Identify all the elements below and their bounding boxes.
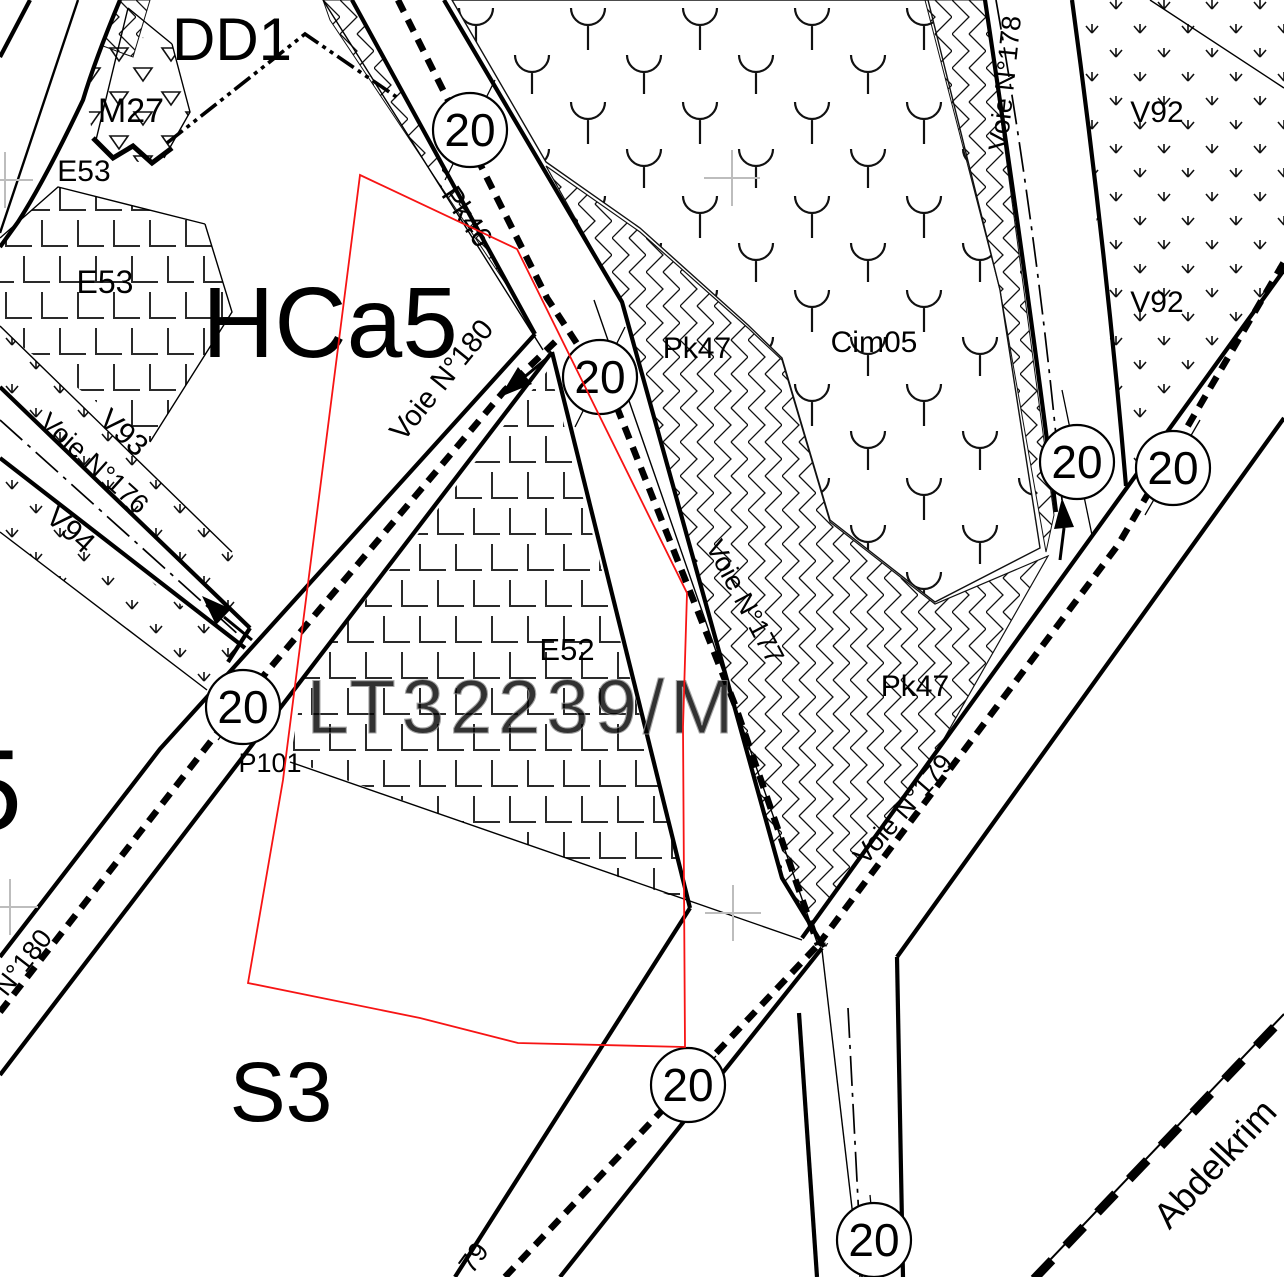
svg-text:20: 20	[444, 104, 495, 156]
zone-label-pk47-lower: Pk47	[881, 670, 949, 703]
watermark-text: LT32239/M	[307, 665, 740, 750]
road-label-abdelkrim: Abdelkrim	[1145, 1091, 1284, 1236]
zone-label-p101: P101	[238, 748, 301, 778]
zoning-map-canvas: LT32239/M 20 20 20 20 20	[0, 0, 1284, 1277]
svg-text:20: 20	[574, 351, 625, 403]
zone-label-m27: M27	[98, 92, 164, 130]
width-badge: 20	[651, 1048, 725, 1122]
zone-label-cim05: Cim05	[831, 326, 918, 359]
svg-text:20: 20	[848, 1214, 899, 1266]
zoning-map: LT32239/M 20 20 20 20 20	[0, 0, 1284, 1277]
zone-label-v92-lower: V92	[1130, 286, 1183, 319]
svg-text:20: 20	[662, 1059, 713, 1111]
zone-label-e52: E52	[539, 632, 594, 667]
svg-text:20: 20	[1147, 442, 1198, 494]
zone-label-hca5: HCa5	[202, 267, 458, 379]
svg-text:20: 20	[217, 681, 268, 733]
zone-label-v92-upper: V92	[1130, 96, 1183, 129]
width-badge: 20	[206, 670, 280, 744]
zone-label-e53-upper: E53	[57, 155, 110, 188]
zone-label-pk47-upper: Pk47	[663, 332, 731, 365]
svg-text:20: 20	[1051, 436, 1102, 488]
zone-label-sector5-partial: 5	[0, 727, 22, 855]
zone-label-e53-lower: E53	[77, 264, 134, 300]
zone-label-dd1: DD1	[172, 6, 292, 73]
zone-label-s3: S3	[230, 1045, 333, 1139]
